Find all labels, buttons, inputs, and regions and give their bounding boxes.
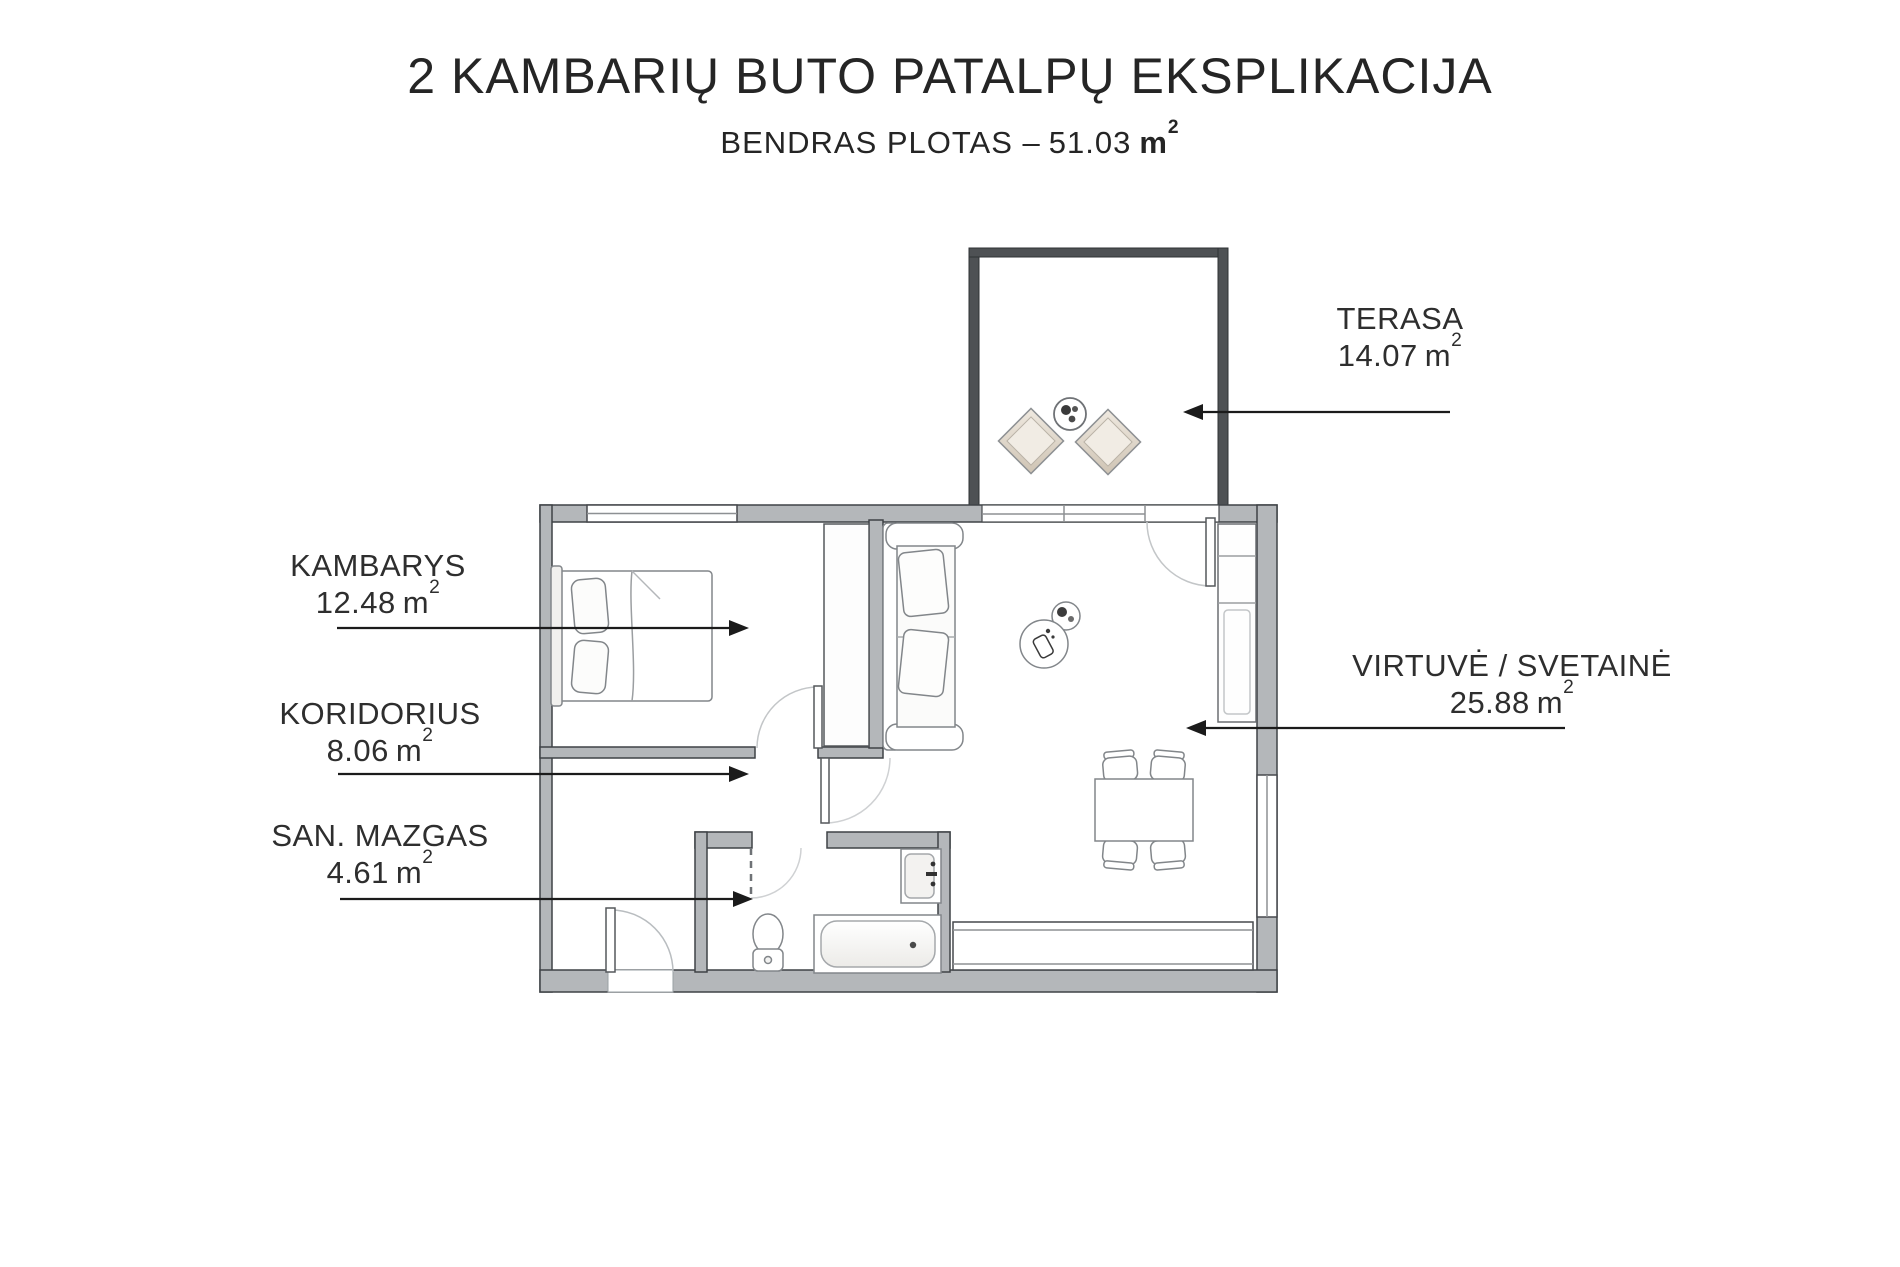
room-area: 14.07m2 [1336,338,1463,373]
room-area: 25.88m2 [1352,685,1672,720]
bathroom-sink [901,849,941,903]
room-label-kambarys: KAMBARYS 12.48m2 [290,548,466,620]
page-subtitle: BENDRAS PLOTAS –51.03m2 [720,126,1179,160]
bedroom-window [587,505,737,522]
dining-table [1095,750,1193,871]
room-name: SAN. MAZGAS [271,818,488,853]
room-label-terasa: TERASA 14.07m2 [1336,301,1463,373]
entrance-door [606,908,673,992]
living-room-bottom-window [953,922,1253,970]
toilet [753,914,783,971]
floor-plan-page: 2 KAMBARIŲ BUTO PATALPŲ EKSPLIKACIJA BEN… [0,0,1900,1267]
total-area-unit: m2 [1139,125,1179,160]
room-name: TERASA [1336,301,1463,336]
sofa [883,523,963,750]
bathroom-door [751,848,801,898]
terrace-door [1147,518,1215,586]
bathtub [814,915,941,973]
coffee-table [1020,602,1080,668]
terrace-walls [969,248,1228,508]
bedroom-door [757,686,822,748]
room-area: 4.61m2 [271,855,488,890]
total-area-value: 51.03 [1049,125,1132,160]
room-label-koridorius: KORIDORIUS 8.06m2 [279,696,480,768]
terrace-sliding-window [982,505,1219,522]
floor-plan-drawing [0,0,1900,1267]
page-title: 2 KAMBARIŲ BUTO PATALPŲ EKSPLIKACIJA [407,50,1492,102]
corridor-living-door [821,758,890,823]
room-name: VIRTUVĖ / SVETAINĖ [1352,648,1672,683]
living-room-right-window [1257,775,1277,917]
bed [551,566,712,706]
room-area: 12.48m2 [290,585,466,620]
wardrobe [824,524,869,746]
room-label-san-mazgas: SAN. MAZGAS 4.61m2 [271,818,488,890]
room-name: KORIDORIUS [279,696,480,731]
room-label-virtuve: VIRTUVĖ / SVETAINĖ 25.88m2 [1352,648,1672,720]
room-area: 8.06m2 [279,733,480,768]
subtitle-label: BENDRAS PLOTAS – [720,125,1040,160]
kitchen-counter [1218,524,1256,722]
terrace-side-table [1054,398,1086,430]
